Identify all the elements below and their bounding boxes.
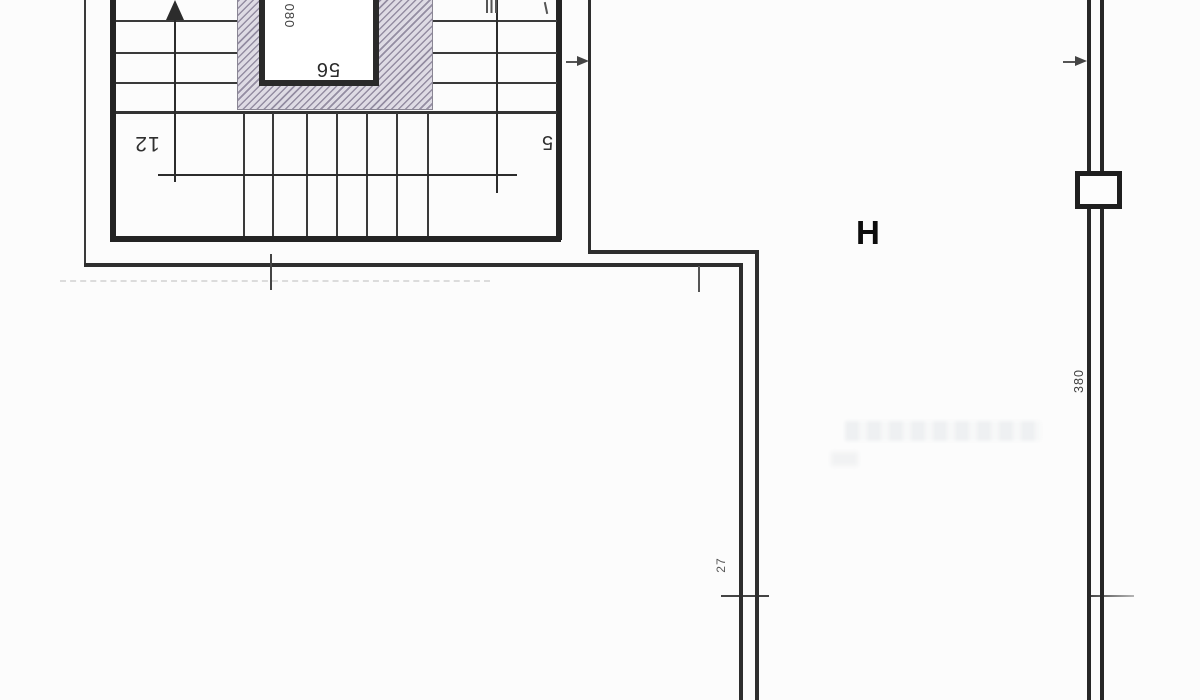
dimension-tick [721,595,769,597]
faint-watermark [845,421,1041,441]
room-label-h: H [856,214,880,252]
dimension-tick [698,266,700,292]
dimension-arrow-icon [1075,56,1087,66]
stair-outer-wall-left [84,0,86,266]
right-wall-left-line [1087,0,1091,700]
step-line [430,20,557,22]
step-line [116,20,238,22]
right-wall-right-line [1100,0,1104,700]
right-wall-dimension-label: 380 [1072,359,1086,403]
step-line [116,52,238,54]
floor-plan-canvas: 12 5 56 080 380 27 H [0,0,1200,700]
walk-line [174,12,176,182]
step-line [116,82,238,84]
stair-count-label-left: 12 [130,131,164,155]
shaft-side-label: 080 [282,0,298,38]
faint-smudge [831,452,858,466]
dimension-tick [270,254,272,290]
stair-outer-wall-right [588,0,591,253]
walk-line [158,174,517,176]
center-wall-left-line [739,265,743,700]
shaft-width-label: 56 [310,57,346,81]
stair-outer-wall-bottom [84,263,743,267]
faint-dimension-line [60,280,490,282]
dimension-arrow-icon [577,56,589,66]
center-wall-dimension-label: 27 [714,547,728,583]
stair-inner-wall-right [556,0,562,240]
cutoff-annotation-mark [544,2,548,14]
step-line [430,82,557,84]
step-line [430,52,557,54]
dimension-tick [1090,595,1134,597]
corridor-wall-top [588,250,759,254]
walk-line [496,0,498,193]
cutoff-annotation-mark [486,0,497,13]
wall-junction-box [1075,171,1122,209]
stair-inner-wall-bottom [110,236,561,242]
stair-count-label-right: 5 [536,131,558,153]
stair-inner-wall-left [110,0,116,240]
center-wall-right-line [755,252,759,700]
